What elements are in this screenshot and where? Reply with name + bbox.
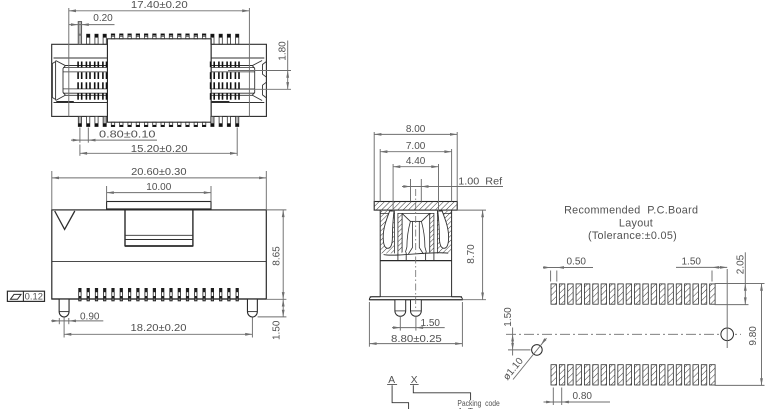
svg-text:1.00 Ref: 1.00 Ref <box>458 177 502 188</box>
svg-text:18.20±0.20: 18.20±0.20 <box>131 323 187 334</box>
svg-text:1.50: 1.50 <box>682 257 702 268</box>
svg-text:1.80: 1.80 <box>277 41 288 61</box>
svg-text:1.50: 1.50 <box>421 318 441 329</box>
svg-text:1.50: 1.50 <box>503 307 514 327</box>
svg-text:0.80±0.10: 0.80±0.10 <box>99 130 156 141</box>
svg-text:1.50: 1.50 <box>271 320 282 340</box>
svg-text:15.20±0.20: 15.20±0.20 <box>131 144 188 155</box>
svg-text:8.70: 8.70 <box>466 244 477 264</box>
svg-text:0.12: 0.12 <box>25 291 43 302</box>
svg-text:8.80±0.25: 8.80±0.25 <box>391 334 442 345</box>
svg-text:8.65: 8.65 <box>271 246 282 266</box>
svg-text:17.40±0.20: 17.40±0.20 <box>131 0 188 11</box>
svg-text:Recommended P.C.Board: Recommended P.C.Board <box>564 204 698 216</box>
svg-text:8.00: 8.00 <box>406 124 426 135</box>
svg-text:0.90: 0.90 <box>80 311 100 322</box>
svg-text:10.00: 10.00 <box>146 182 171 193</box>
svg-text:(Tolerance:±0.05): (Tolerance:±0.05) <box>588 230 677 242</box>
svg-text:2.05: 2.05 <box>736 254 747 274</box>
svg-text:20.60±0.30: 20.60±0.30 <box>131 167 187 178</box>
svg-text:Layout: Layout <box>619 217 653 229</box>
svg-text:0.80: 0.80 <box>573 391 593 402</box>
svg-text:0.20: 0.20 <box>93 13 113 24</box>
svg-text:4.40: 4.40 <box>406 156 426 167</box>
svg-text:9.80: 9.80 <box>748 326 759 346</box>
svg-text:0.50: 0.50 <box>567 257 587 268</box>
svg-text:7.00: 7.00 <box>406 141 426 152</box>
